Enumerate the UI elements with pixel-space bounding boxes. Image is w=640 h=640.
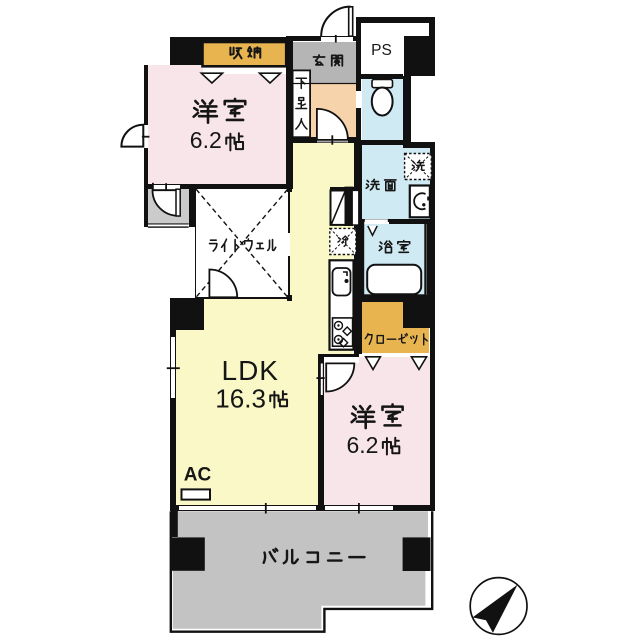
svg-text:AC: AC [184,464,212,485]
svg-text:PS: PS [371,42,392,59]
svg-text:16.3: 16.3 [215,383,266,413]
svg-text:6.2: 6.2 [190,127,222,153]
svg-text:LDK: LDK [222,355,279,386]
svg-text:6.2: 6.2 [347,432,379,458]
